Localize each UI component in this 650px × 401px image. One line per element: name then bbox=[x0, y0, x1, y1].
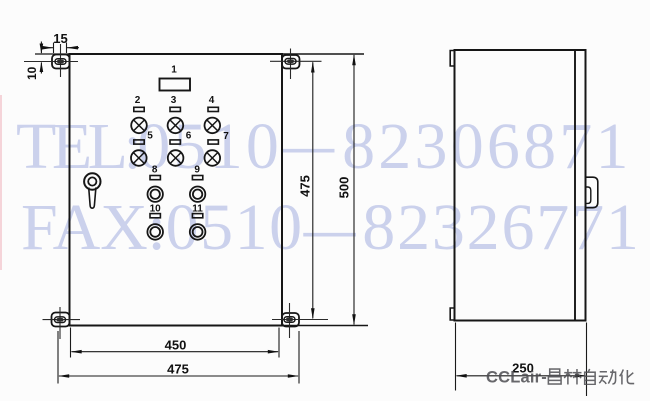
svg-text:15: 15 bbox=[53, 31, 67, 46]
svg-text:475: 475 bbox=[167, 362, 189, 377]
svg-text:3: 3 bbox=[171, 95, 177, 106]
svg-text:8: 8 bbox=[152, 165, 158, 176]
svg-text:5: 5 bbox=[147, 131, 153, 142]
svg-text:10: 10 bbox=[25, 66, 39, 80]
svg-text:7: 7 bbox=[223, 131, 229, 142]
svg-text:450: 450 bbox=[165, 338, 187, 353]
svg-text:475: 475 bbox=[298, 175, 313, 197]
svg-text:4: 4 bbox=[209, 95, 215, 106]
svg-text:9: 9 bbox=[194, 165, 200, 176]
svg-text:6: 6 bbox=[186, 131, 192, 142]
svg-text:500: 500 bbox=[337, 177, 352, 199]
svg-text:2: 2 bbox=[135, 95, 141, 106]
svg-text:1: 1 bbox=[171, 65, 177, 76]
